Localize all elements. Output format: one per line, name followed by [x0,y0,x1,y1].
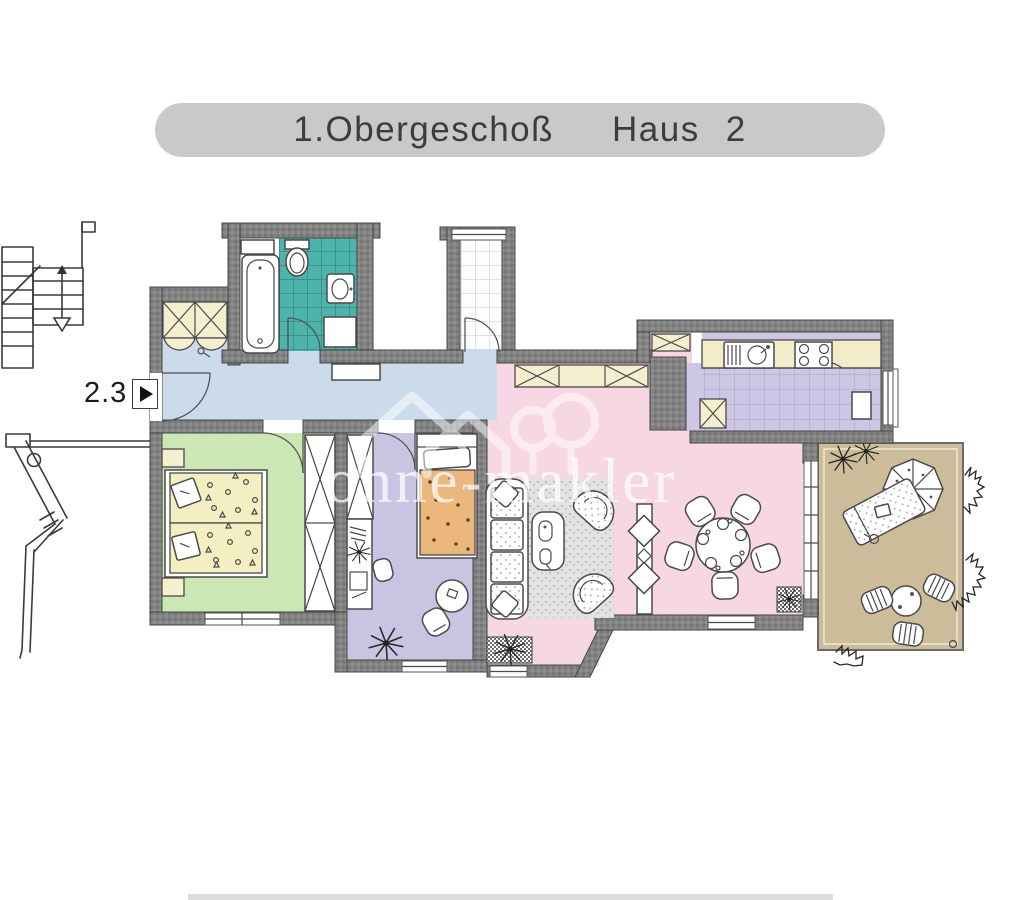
unit-number: 2.3 [84,377,127,410]
building-edge-outline [6,434,150,658]
living-top-cabinets [515,365,648,387]
window [205,613,280,625]
stairs-direction-arrow [54,265,70,331]
stove [795,342,832,368]
hall-shelf [332,364,380,380]
window [452,229,506,240]
stairs-flag-icon [82,222,95,232]
page-edge-strip [188,894,833,900]
room-storage-wc [460,240,502,349]
entrance-arrow-icon [132,379,158,409]
washing-machine [324,317,356,347]
window [883,369,898,427]
window [402,661,447,672]
kitchen-appliance [852,392,871,419]
dining-table [696,518,750,572]
toilet [285,240,309,276]
nightstand [162,578,184,596]
dining-chair [712,572,739,600]
window [490,666,527,677]
stairwell [2,222,95,368]
floor-plan-page: 1.Obergeschoß Haus 2 [0,0,1020,900]
kitchen-sink [724,342,774,368]
niche-cabinet [652,334,690,351]
pillow [171,531,200,560]
nightstand [162,449,184,467]
planter-box [487,635,532,665]
shrub [964,467,984,513]
balcony-chair [892,621,925,647]
bath-shelf [241,240,274,254]
window [708,616,755,629]
double-bed [165,470,267,577]
balcony-table [891,586,921,616]
balcony-door-window [804,461,818,599]
entrance-label: 2.3 [84,377,158,410]
balcony [818,439,985,666]
planter-box [777,587,801,612]
kids-table [436,580,468,612]
bathtub [242,255,279,353]
coffee-table [532,512,564,570]
bathroom-sink [327,274,354,303]
desk [347,519,372,609]
kitchen-cabinet [700,399,726,428]
watermark-text: ohne-makler [326,445,677,518]
